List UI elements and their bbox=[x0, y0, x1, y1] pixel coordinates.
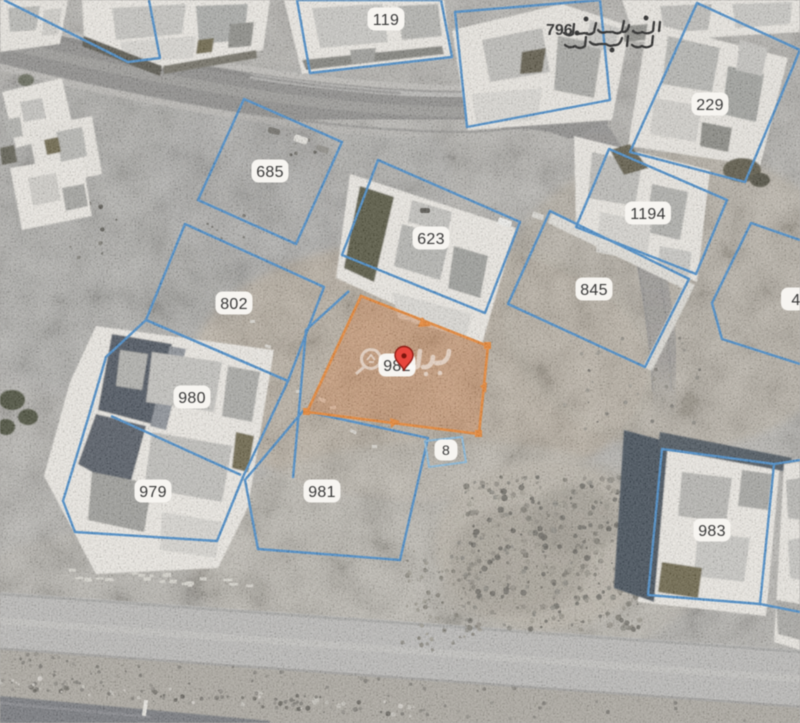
svg-text:1194: 1194 bbox=[630, 206, 666, 223]
svg-text:802: 802 bbox=[220, 296, 248, 313]
svg-text:979: 979 bbox=[139, 484, 167, 501]
svg-text:980: 980 bbox=[178, 390, 206, 407]
svg-text:981: 981 bbox=[308, 484, 336, 501]
svg-text:983: 983 bbox=[698, 523, 726, 540]
svg-text:845: 845 bbox=[580, 282, 608, 299]
svg-text:8: 8 bbox=[442, 442, 450, 458]
svg-text:623: 623 bbox=[417, 231, 445, 248]
svg-text:685: 685 bbox=[256, 164, 284, 181]
svg-text:229: 229 bbox=[696, 97, 724, 114]
svg-text:4: 4 bbox=[791, 292, 800, 309]
svg-text:119: 119 bbox=[373, 12, 399, 29]
